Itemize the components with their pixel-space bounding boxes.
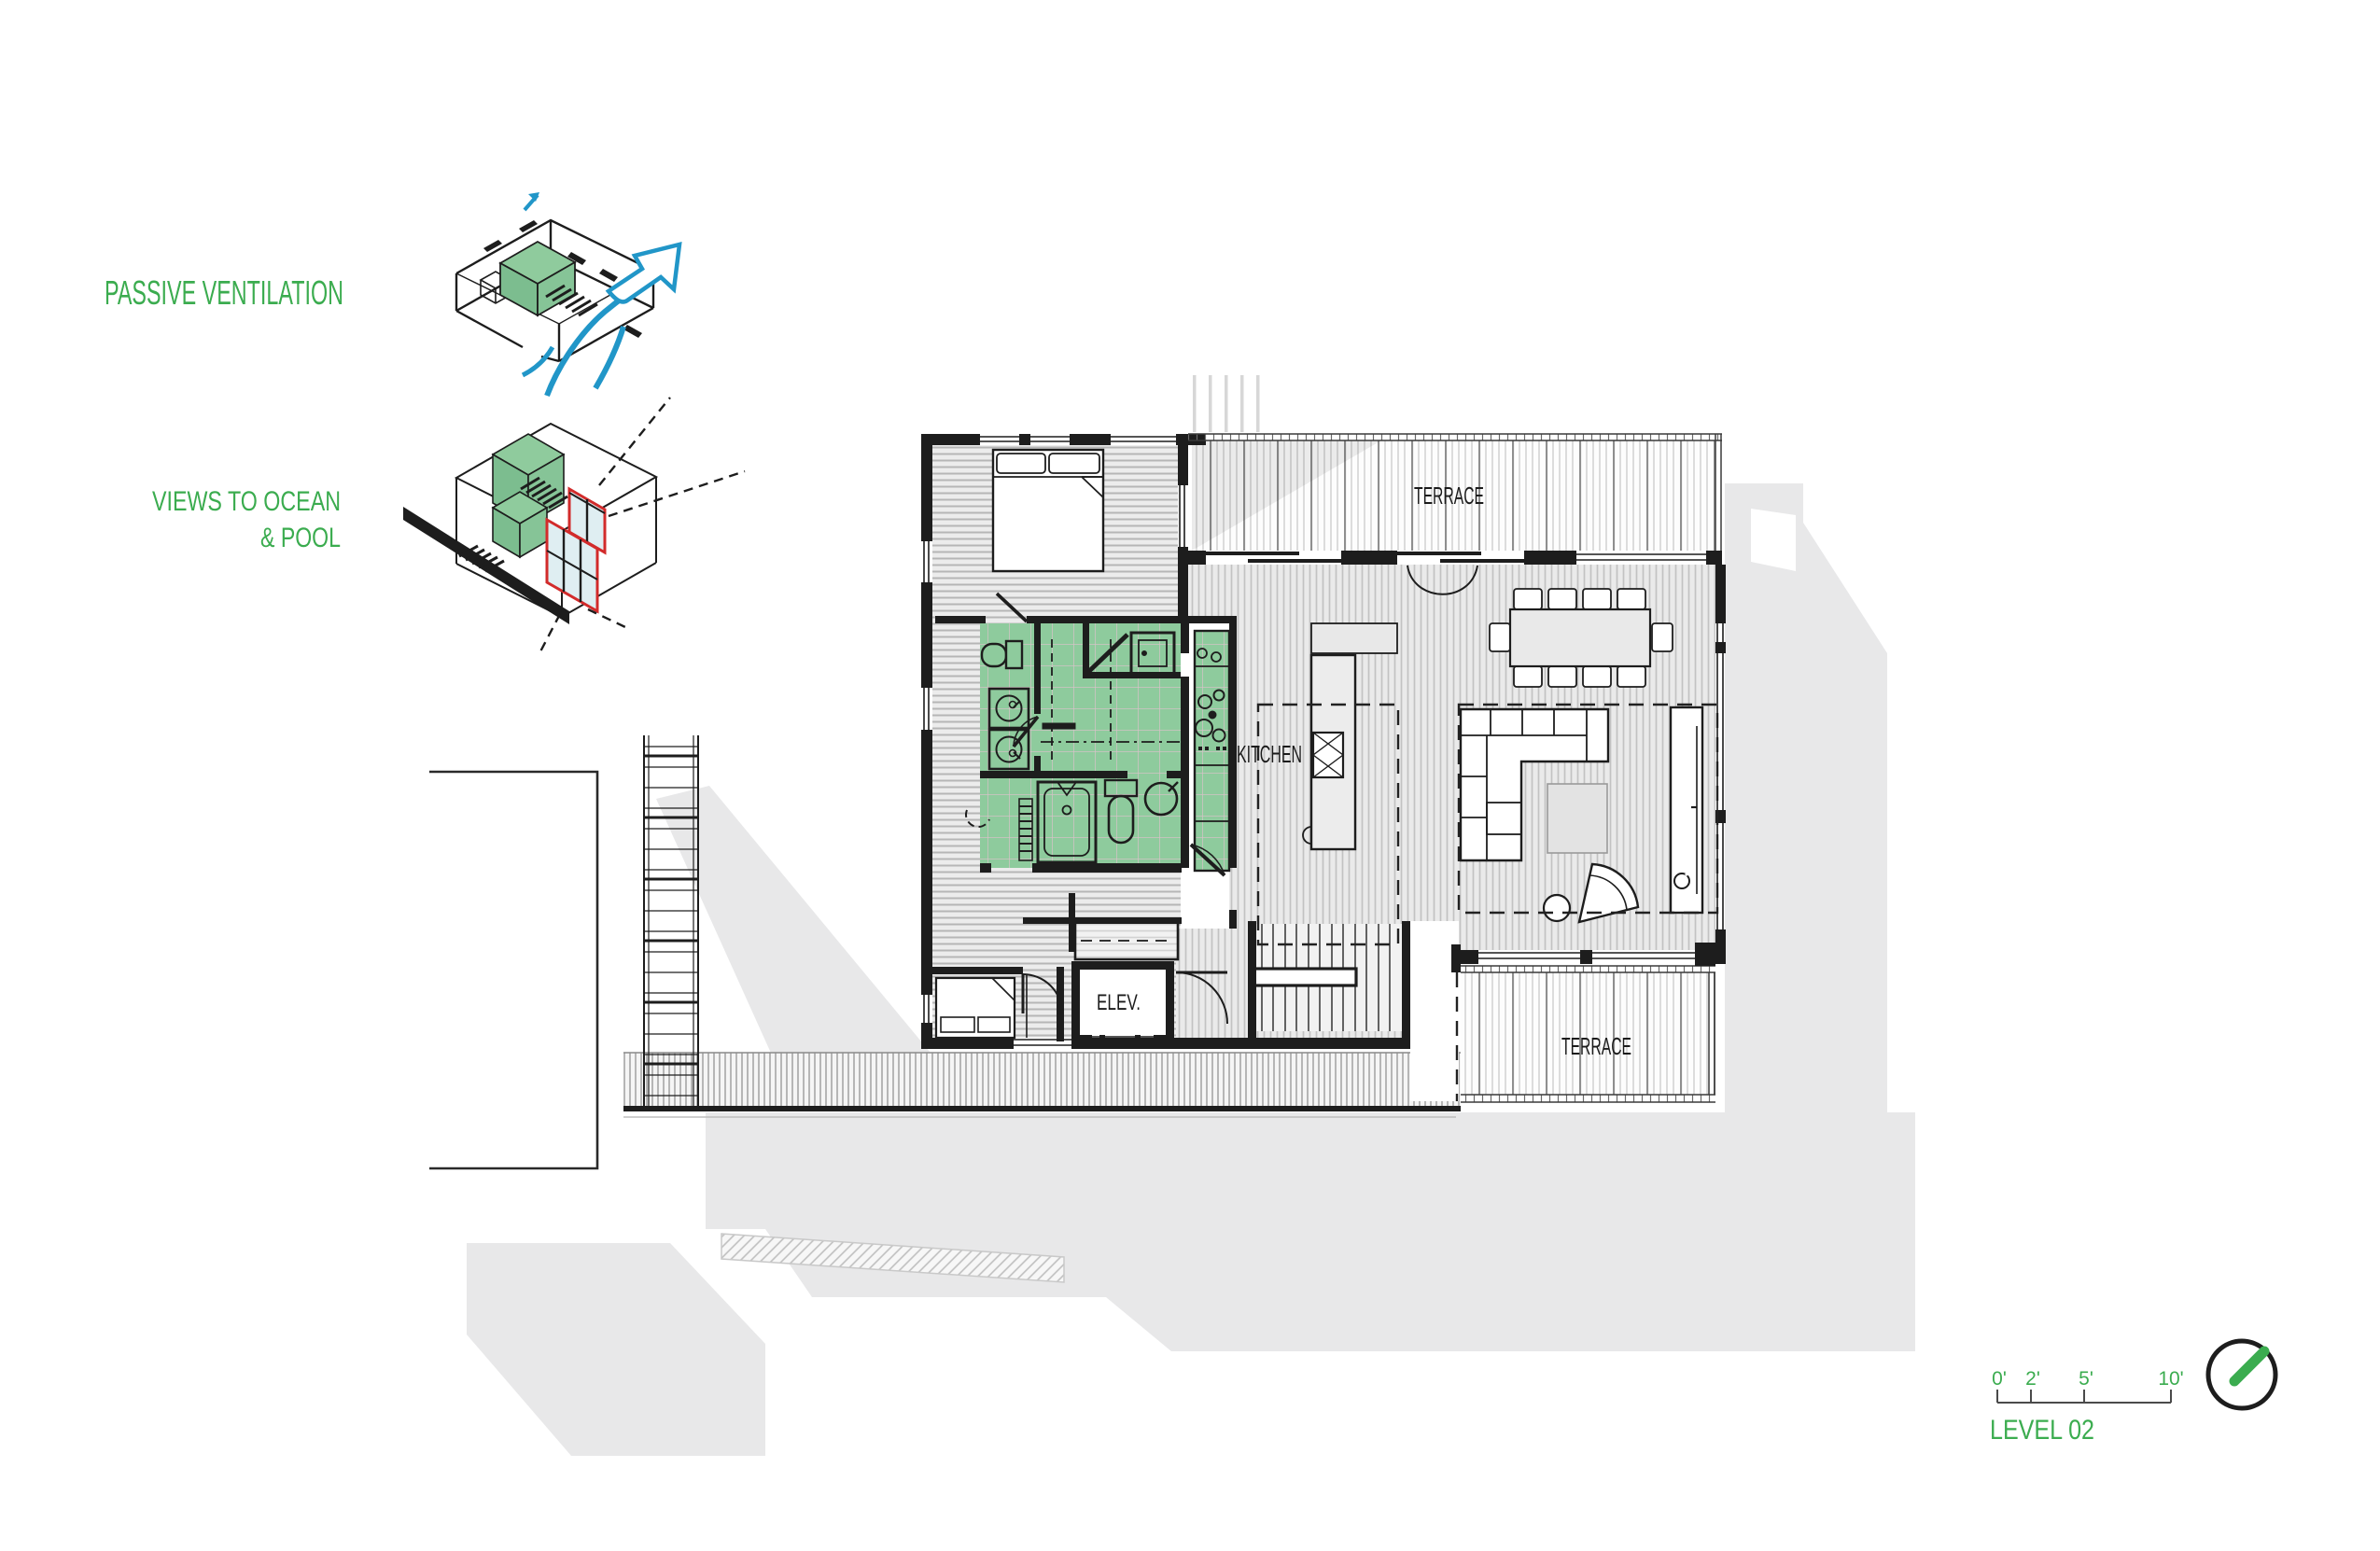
bed-master [993, 450, 1103, 571]
views-diagram [403, 398, 745, 655]
drawing-sheet: TERRACE KITCHEN ELEV. TERRACE [0, 0, 2380, 1551]
floor-plan-drawing: TERRACE KITCHEN ELEV. TERRACE [0, 0, 2380, 1551]
sideboard [1671, 707, 1702, 913]
elevator-label: ELEV. [1097, 990, 1141, 1015]
kitchen-label: KITCHEN [1237, 740, 1302, 768]
scale-tick-2: 2' [2025, 1368, 2040, 1390]
interior-stair [1253, 924, 1402, 1031]
annotation-labels: PASSIVE VENTILATION VIEWS TO OCEAN & POO… [105, 273, 343, 553]
stair-handrail [1253, 969, 1356, 985]
bed-small [936, 974, 1027, 1038]
passive-ventilation-label: PASSIVE VENTILATION [105, 273, 343, 312]
coffee-table [1547, 784, 1607, 853]
scale-bar [1997, 1390, 2171, 1403]
deck-walkway [623, 1053, 1461, 1117]
passive-ventilation-diagram [456, 192, 679, 396]
views-label-line2: & POOL [260, 523, 341, 553]
north-arrow-icon [2208, 1341, 2275, 1408]
terrace-top-label: TERRACE [1414, 482, 1484, 510]
ghost-lines [1193, 375, 1260, 432]
views-label-line1: VIEWS TO OCEAN [152, 486, 341, 517]
pool-outline [429, 772, 597, 1168]
scale-tick-0: 0' [1992, 1368, 2007, 1390]
scale-tick-10: 10' [2158, 1368, 2183, 1390]
diagram1-stair-core [500, 242, 575, 315]
title-block: 0' 2' 5' 10' LEVEL 02 [1990, 1341, 2275, 1446]
side-table [1544, 895, 1570, 921]
terrace-bottom-label: TERRACE [1561, 1032, 1631, 1060]
level-label: LEVEL 02 [1990, 1415, 2094, 1446]
scale-tick-5: 5' [2079, 1368, 2093, 1390]
